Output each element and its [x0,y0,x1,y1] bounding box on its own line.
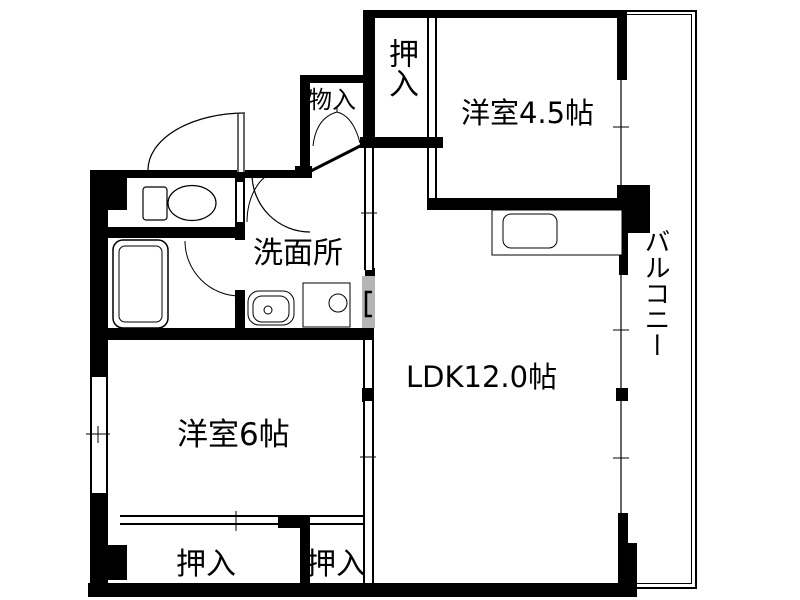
room-label-storage: 物入 [308,80,366,115]
wall-right-mid [619,233,628,275]
toilet-door [236,182,244,222]
wall-southwest-notch [108,545,127,580]
room-label-washroom: 洗面所 [253,228,363,272]
washer-pan [303,283,350,327]
wall-right-lower-a [618,513,628,543]
room6-ldk-partition-upper [363,340,374,388]
room-label-balcony: バルコニー [640,228,670,378]
wall-toilet-bottom [108,227,243,238]
room45-entry-door [427,148,437,198]
washbasin-inner [253,296,289,322]
room-label-western-room-45: 洋室4.5帖 [440,90,615,132]
wall-window-mullion [616,388,628,401]
kitchen-counter [492,210,622,255]
wall-left-upper [90,170,108,377]
washbasin-drain [264,306,272,314]
wall-bath-right [235,290,245,330]
wall-bottom [88,583,637,597]
kitchen-sink [503,214,557,248]
wall-hall-top [360,137,443,148]
washer-faucet [329,294,347,312]
hall-door-leaf [238,114,244,172]
wall-right-upper [617,10,627,80]
floor-plan-canvas: 押入 物入 洋室4.5帖 バルコニー 洗面所 LDK12.0帖 洋室6帖 押入 … [0,0,800,600]
wall-top [363,10,627,18]
washroom-door-arc [252,174,310,232]
room-label-ldk: LDK12.0帖 [406,354,581,396]
wall-left-lower [90,493,108,597]
wall-room6-partition-block [362,388,374,402]
bathtub-outer [113,240,168,328]
wall-washroom-bottom [90,328,374,340]
wall-northwest-pillar [108,178,127,210]
room-label-closet-bottom-right: 押入 [306,539,368,583]
entrance-door-leaf [303,142,368,175]
toilet-tank [143,187,167,220]
wall-ldk-top [427,198,627,210]
wall-balcony-block [617,185,650,233]
room6-window-left [90,377,108,493]
hall-door-leaf-bg [237,114,245,172]
hall-door-arc [148,113,245,170]
room-label-closet-bottom-left: 押入 [176,539,242,583]
room-label-western-room-6: 洋室6帖 [177,409,307,454]
bathroom-door-arc [185,241,240,296]
room6-closet-fusuma-right [310,515,365,525]
toilet-bowl [168,186,216,221]
toilet-door-arc [247,173,272,222]
wall-closet-divider-stub [278,515,302,528]
room6-closet-fusuma-left [120,515,278,525]
washbasin-outer [248,291,294,325]
room-label-closet-top: 押入 [381,38,419,118]
closet-top-sliding-door [427,18,437,137]
hall-partition [364,148,374,270]
wall-northwest [90,170,310,178]
bathtub-inner [119,246,162,322]
washroom-ldk-door-panel [362,276,375,328]
